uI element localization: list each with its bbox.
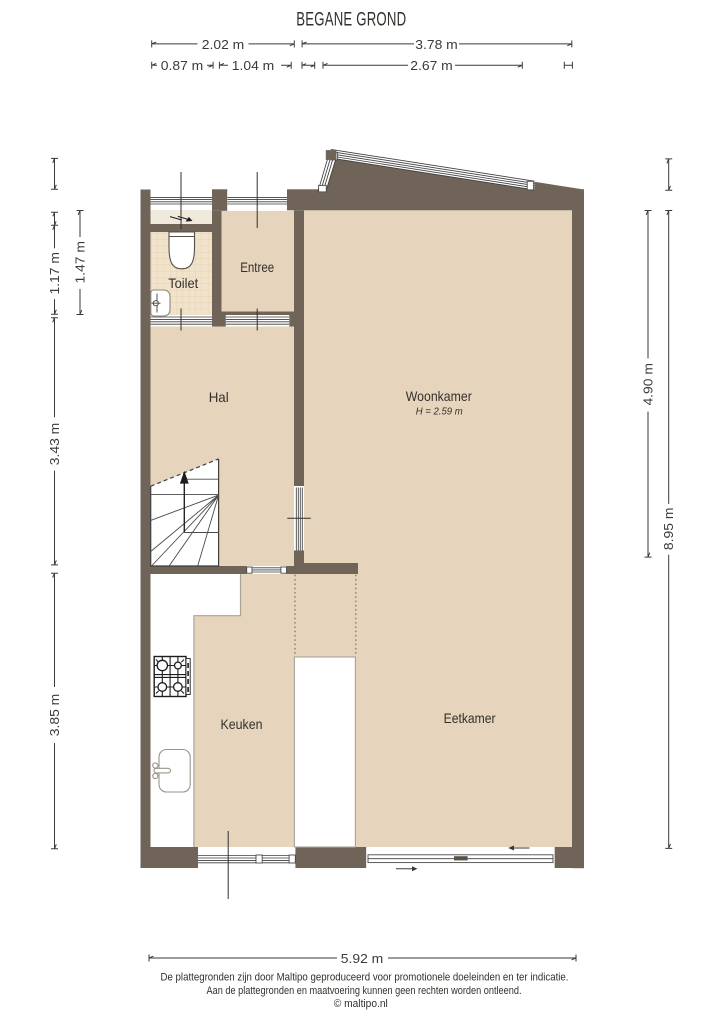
svg-text:Woonkamer: Woonkamer [406, 388, 472, 404]
svg-text:2.02 m: 2.02 m [202, 37, 245, 52]
svg-text:1.47 m: 1.47 m [73, 241, 88, 284]
svg-text:Keuken: Keuken [221, 716, 263, 732]
svg-text:Entree: Entree [240, 259, 274, 275]
svg-text:3.85 m: 3.85 m [47, 694, 62, 737]
svg-text:3.78 m: 3.78 m [415, 37, 458, 52]
svg-text:De plattegronden zijn door Mal: De plattegronden zijn door Maltipo gepro… [161, 972, 569, 984]
svg-text:8.95 m: 8.95 m [661, 508, 676, 551]
svg-text:0.87 m: 0.87 m [161, 58, 204, 73]
svg-text:BEGANE GROND: BEGANE GROND [296, 10, 406, 31]
svg-text:4.90 m: 4.90 m [641, 363, 656, 406]
svg-text:© maltipo.nl: © maltipo.nl [334, 998, 388, 1010]
svg-text:1.04 m: 1.04 m [232, 58, 275, 73]
svg-text:Hal: Hal [209, 389, 229, 405]
svg-text:Aan de plattegronden en maatvo: Aan de plattegronden en maatvoering kunn… [207, 985, 522, 997]
svg-text:Eetkamer: Eetkamer [444, 710, 496, 726]
svg-text:Toilet: Toilet [168, 275, 198, 291]
svg-text:5.92 m: 5.92 m [341, 951, 384, 966]
svg-text:2.67 m: 2.67 m [410, 58, 453, 73]
svg-text:3.43 m: 3.43 m [47, 423, 62, 466]
svg-text:1.17 m: 1.17 m [47, 252, 62, 295]
svg-text:H = 2.59 m: H = 2.59 m [416, 405, 463, 417]
